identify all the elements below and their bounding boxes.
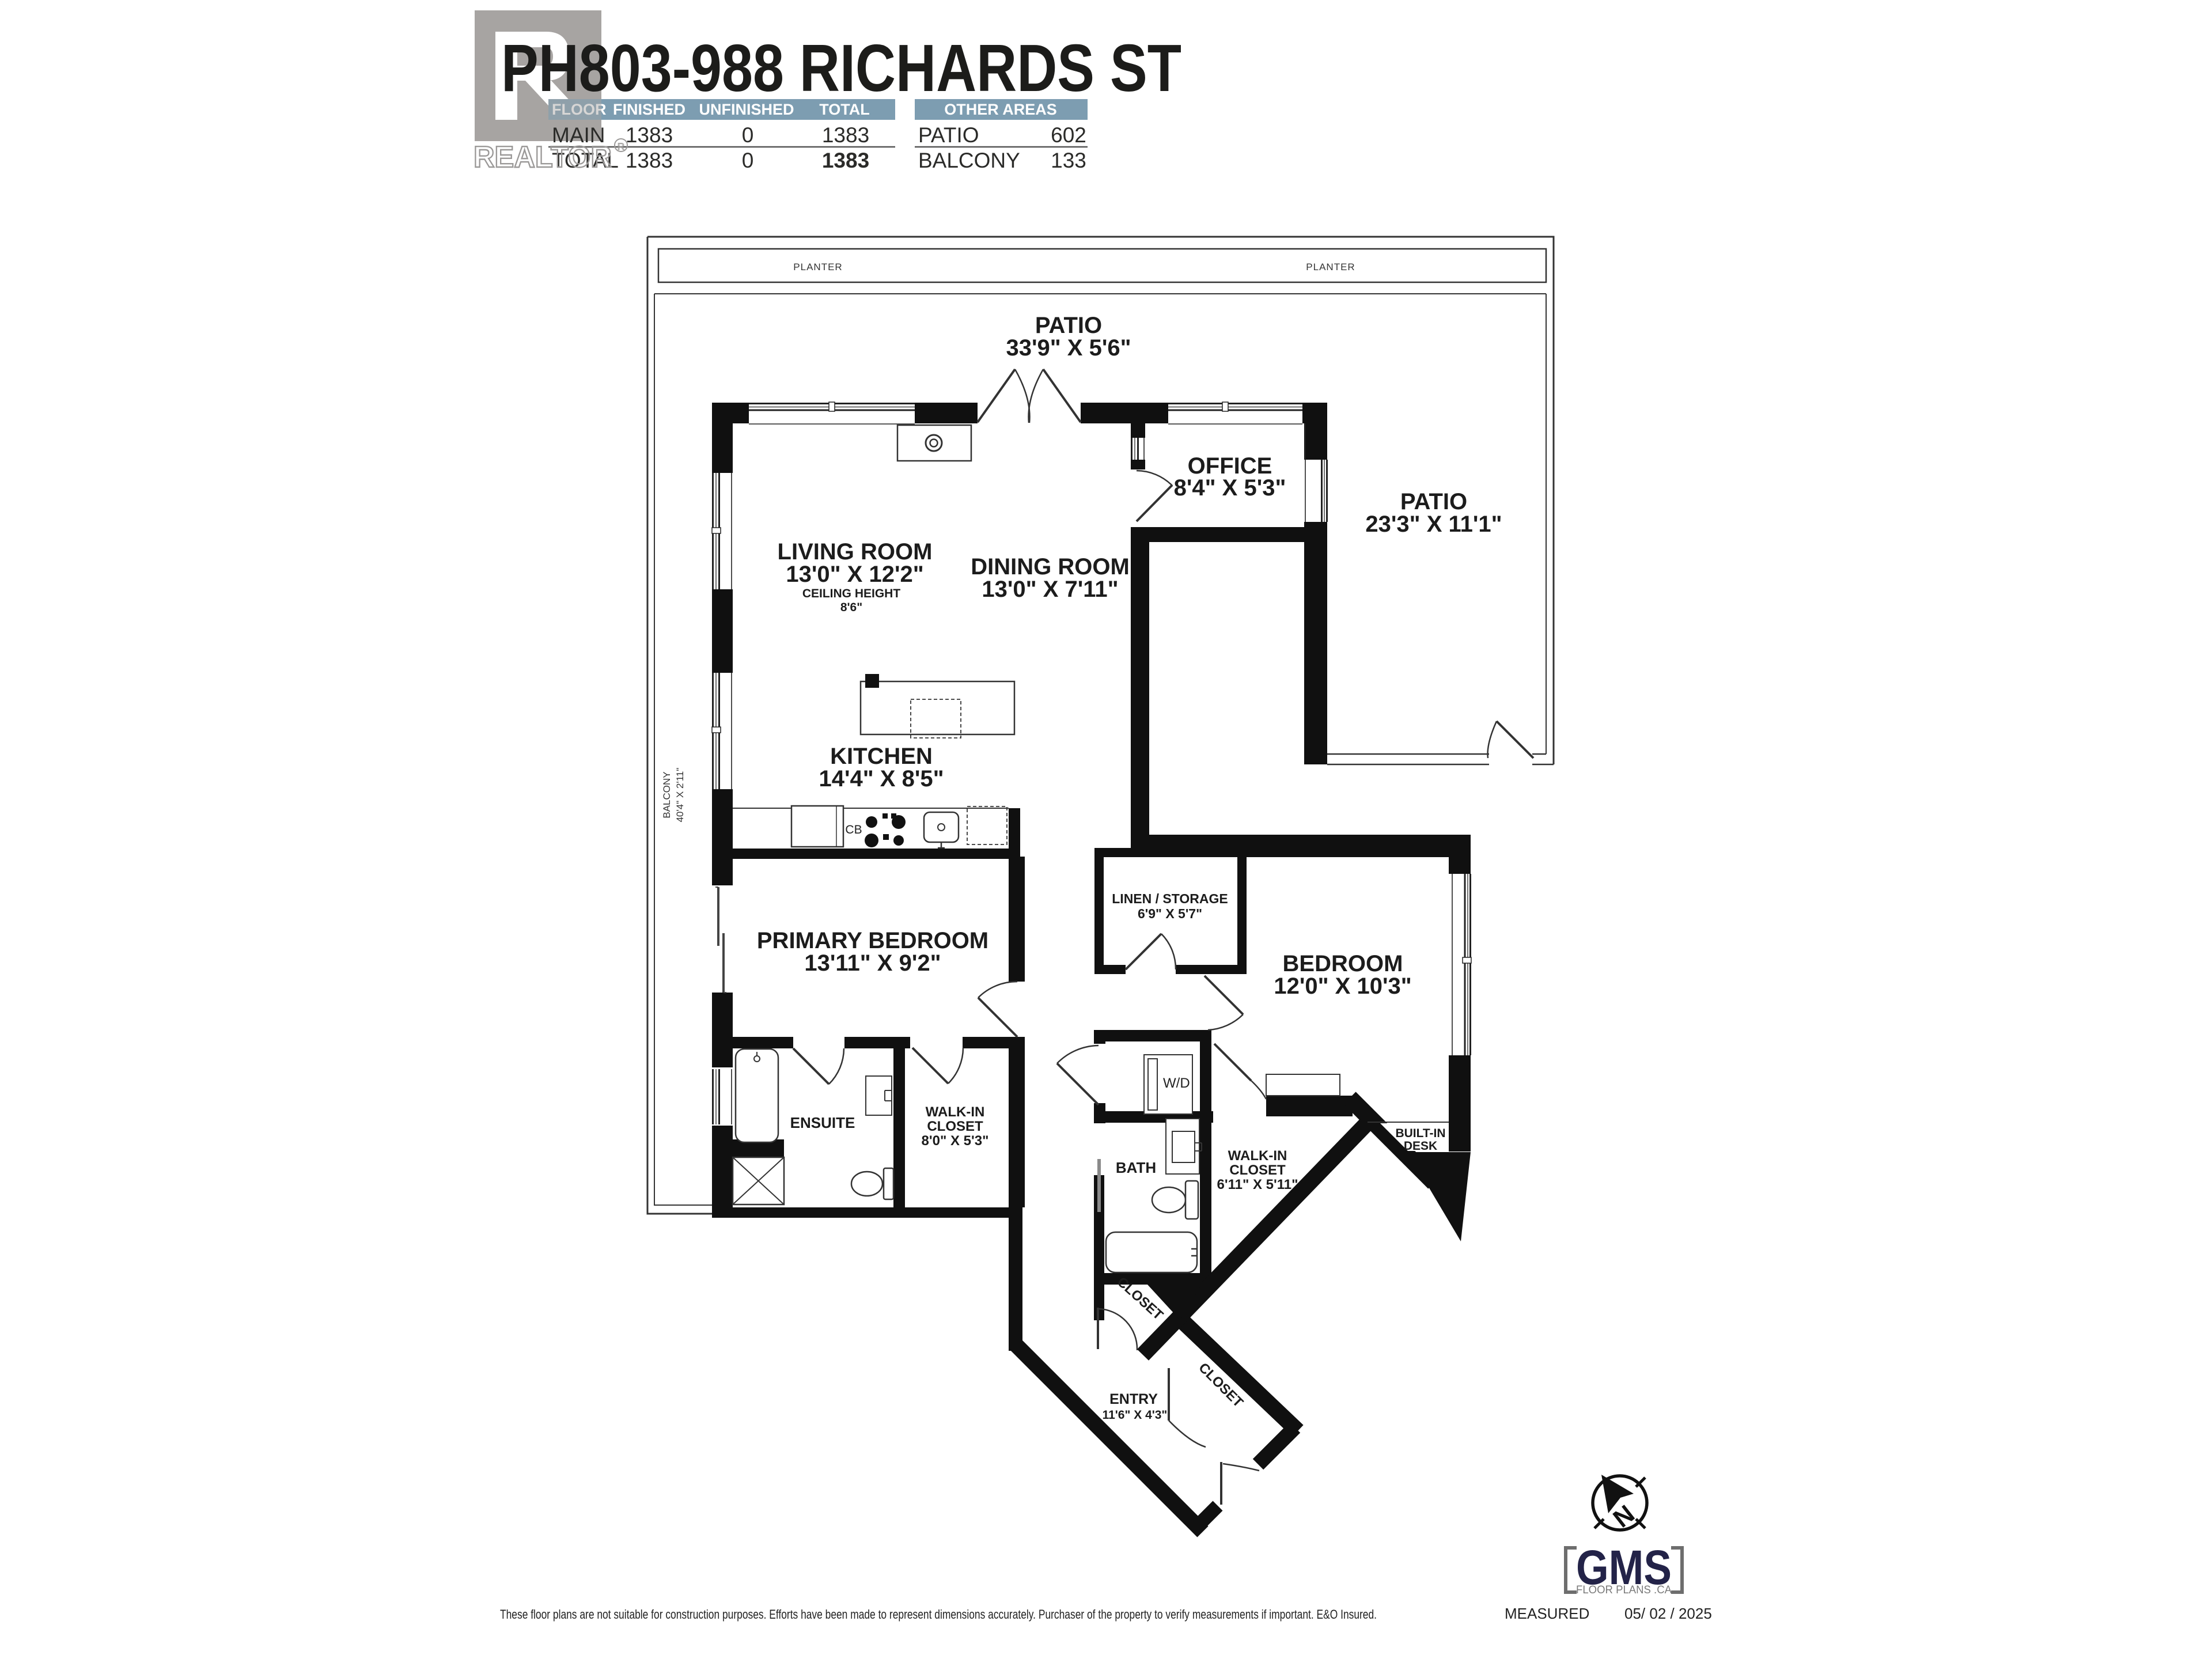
svg-text:33'9" X 5'6": 33'9" X 5'6"	[1006, 335, 1131, 361]
svg-text:FINISHED: FINISHED	[613, 101, 685, 118]
svg-text:05/ 02 / 2025: 05/ 02 / 2025	[1624, 1605, 1712, 1622]
svg-text:ENTRY: ENTRY	[1109, 1391, 1158, 1407]
svg-text:R: R	[618, 141, 624, 152]
svg-text:40'4" X 2'11": 40'4" X 2'11"	[675, 768, 685, 823]
svg-text:1383: 1383	[822, 123, 869, 147]
svg-text:W/D: W/D	[1163, 1075, 1190, 1091]
svg-text:8'6": 8'6"	[840, 601, 862, 614]
svg-text:CEILING HEIGHT: CEILING HEIGHT	[802, 587, 901, 600]
svg-text:133: 133	[1051, 149, 1086, 172]
svg-text:BALCONY: BALCONY	[918, 149, 1020, 172]
svg-text:PLANTER: PLANTER	[1306, 262, 1355, 272]
svg-text:8'4" X 5'3": 8'4" X 5'3"	[1174, 475, 1286, 501]
svg-text:12'0" X 10'3": 12'0" X 10'3"	[1274, 974, 1411, 999]
svg-text:PH803-988 RICHARDS ST: PH803-988 RICHARDS ST	[501, 31, 1181, 105]
svg-text:REALTOR: REALTOR	[474, 141, 612, 174]
svg-text:BUILT-IN: BUILT-IN	[1395, 1127, 1445, 1140]
svg-text:13'0" X 12'2": 13'0" X 12'2"	[786, 562, 923, 587]
svg-text:DESK: DESK	[1404, 1139, 1437, 1153]
svg-text:0: 0	[742, 123, 754, 147]
svg-text:WALK-IN: WALK-IN	[1228, 1148, 1287, 1164]
svg-text:LIVING ROOM: LIVING ROOM	[778, 539, 933, 565]
svg-text:CB: CB	[845, 823, 862, 836]
svg-text:KITCHEN: KITCHEN	[830, 744, 933, 769]
svg-text:FLOOR PLANS .CA: FLOOR PLANS .CA	[1576, 1584, 1672, 1596]
svg-text:1383: 1383	[626, 149, 673, 172]
svg-text:PLANTER: PLANTER	[793, 262, 842, 272]
svg-text:These floor plans are not suit: These floor plans are not suitable for c…	[500, 1607, 1377, 1622]
svg-text:PRIMARY BEDROOM: PRIMARY BEDROOM	[757, 928, 988, 953]
svg-text:14'4" X 8'5": 14'4" X 8'5"	[819, 766, 944, 791]
svg-text:WALK-IN: WALK-IN	[926, 1104, 985, 1120]
svg-text:PATIO: PATIO	[1400, 489, 1467, 514]
svg-text:602: 602	[1051, 123, 1086, 147]
svg-text:6'9" X 5'7": 6'9" X 5'7"	[1138, 906, 1202, 921]
svg-text:BALCONY: BALCONY	[661, 771, 672, 818]
svg-text:23'3" X 11'1": 23'3" X 11'1"	[1365, 512, 1502, 537]
svg-text:UNFINISHED: UNFINISHED	[699, 101, 794, 118]
svg-text:13'0" X 7'11": 13'0" X 7'11"	[982, 577, 1118, 602]
svg-text:13'11" X 9'2": 13'11" X 9'2"	[804, 950, 941, 976]
svg-text:1383: 1383	[626, 123, 673, 147]
svg-text:BEDROOM: BEDROOM	[1283, 951, 1403, 976]
svg-text:8'0" X 5'3": 8'0" X 5'3"	[922, 1133, 989, 1149]
svg-text:LINEN / STORAGE: LINEN / STORAGE	[1112, 891, 1228, 906]
svg-text:1383: 1383	[822, 149, 869, 172]
svg-text:CLOSET: CLOSET	[1229, 1162, 1286, 1178]
svg-text:TOTAL: TOTAL	[819, 101, 870, 118]
svg-text:MEASURED: MEASURED	[1505, 1605, 1589, 1622]
svg-text:PATIO: PATIO	[1035, 313, 1102, 338]
svg-text:0: 0	[742, 149, 754, 172]
svg-text:PATIO: PATIO	[918, 123, 979, 147]
svg-text:ENSUITE: ENSUITE	[790, 1114, 855, 1131]
svg-text:CLOSET: CLOSET	[927, 1119, 983, 1134]
svg-text:DINING ROOM: DINING ROOM	[971, 554, 1130, 579]
svg-text:OTHER AREAS: OTHER AREAS	[944, 101, 1057, 118]
svg-text:11'6" X 4'3": 11'6" X 4'3"	[1103, 1408, 1168, 1422]
svg-text:6'11" X 5'11": 6'11" X 5'11"	[1217, 1177, 1298, 1192]
svg-text:BATH: BATH	[1116, 1159, 1156, 1176]
